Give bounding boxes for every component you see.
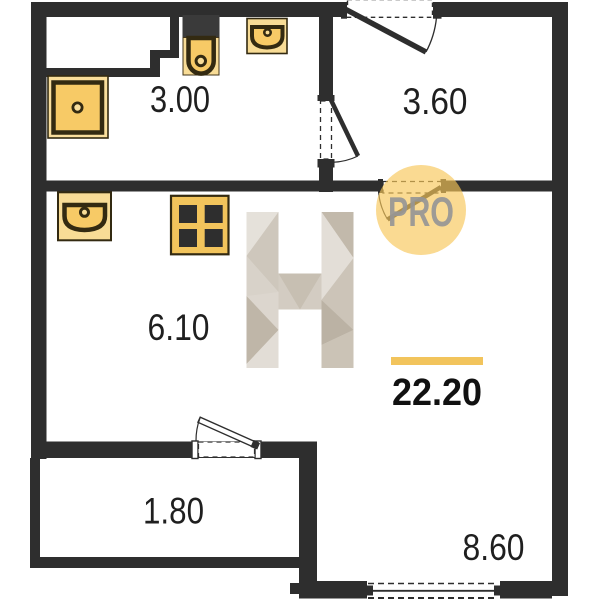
svg-text:3.60: 3.60 (403, 81, 468, 122)
svg-text:6.10: 6.10 (148, 307, 210, 348)
svg-text:1.80: 1.80 (143, 491, 204, 532)
svg-text:22.20: 22.20 (392, 372, 482, 414)
svg-text:3.00: 3.00 (150, 79, 210, 120)
svg-text:PRO: PRO (388, 188, 454, 235)
svg-text:8.60: 8.60 (463, 527, 525, 568)
